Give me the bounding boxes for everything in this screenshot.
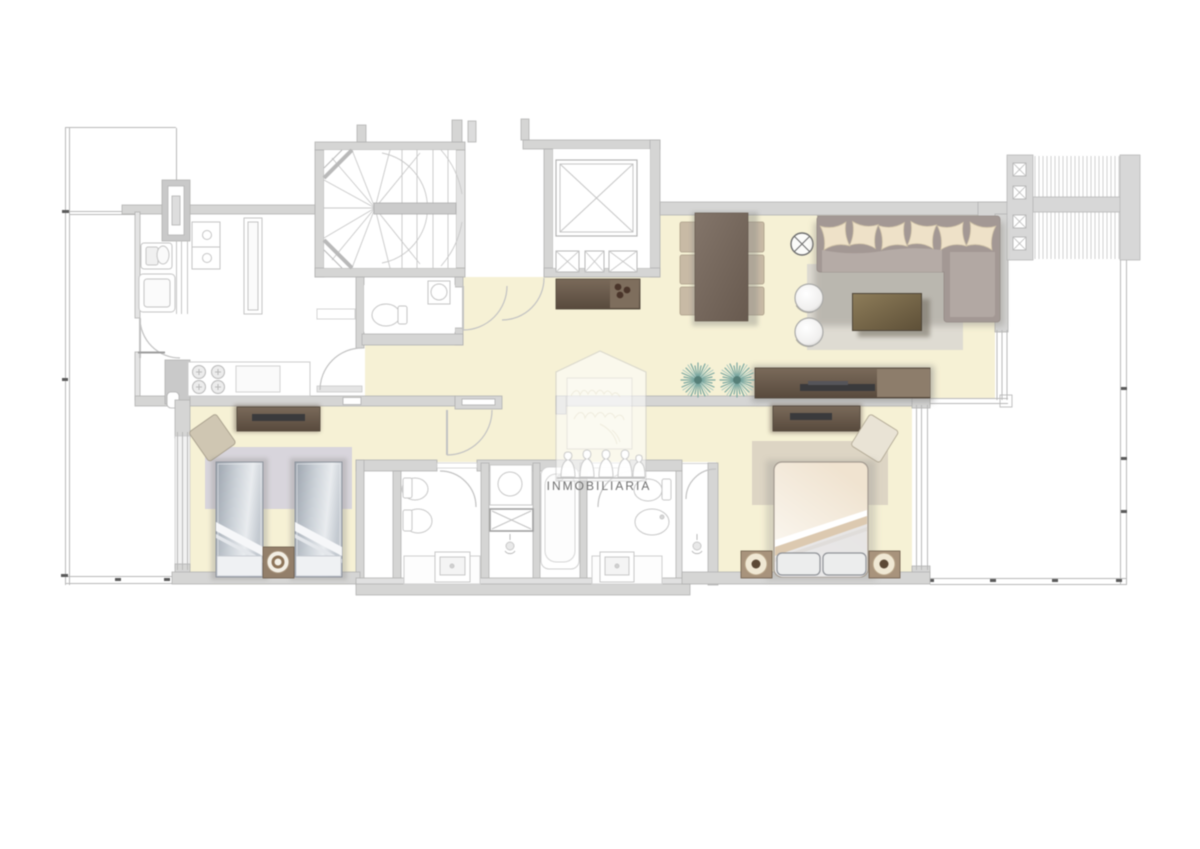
svg-text:INMOBILIARIA: INMOBILIARIA (547, 479, 652, 493)
